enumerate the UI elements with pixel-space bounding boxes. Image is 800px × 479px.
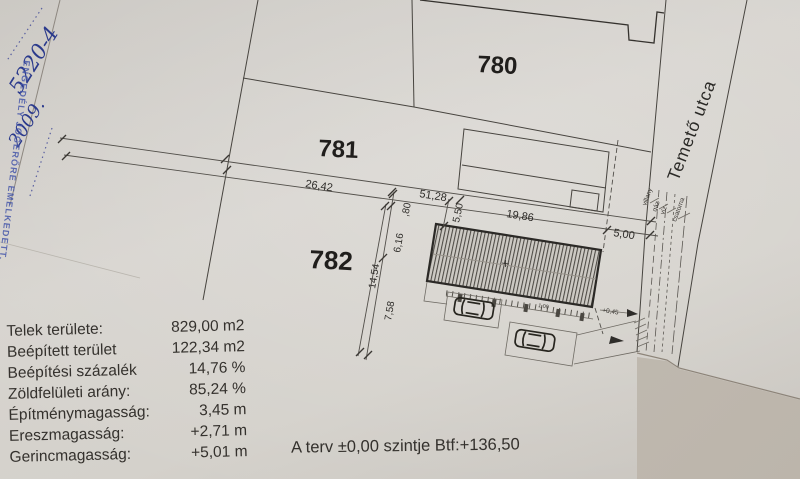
dim-side-setback: 5,50 <box>451 202 466 224</box>
car-top-view-2 <box>514 329 555 352</box>
street-lines <box>637 0 800 399</box>
datum-level-note: A terv ±0,00 szintje Btf:+136,50 <box>291 435 520 457</box>
dim-front-total: 51,28 <box>419 188 448 204</box>
row-value: 122,34 m2 <box>171 336 245 359</box>
dim-street-setback: 5,00 <box>613 227 636 242</box>
site-plan-photo: 26,42 51,28 19,86 5,00 5,50 ,80 6,16 14,… <box>0 0 800 479</box>
row-label: Gerincmagasság: <box>9 444 131 468</box>
row-value: 829,00 m2 <box>171 315 245 338</box>
row-value: 14,76 % <box>188 357 245 379</box>
permit-annotations: 5220-4 2009. ENGEDÉLY JOGERŐRE EMELKEDET… <box>0 0 63 261</box>
slope-arrow-icon <box>627 309 638 317</box>
row-label: Ereszmagasság: <box>9 423 125 447</box>
row-label: Zöldfelületi arány: <box>8 381 131 405</box>
handwritten-file-number: 5220-4 <box>4 22 64 97</box>
row-value: 3,45 m <box>199 399 247 421</box>
dim-depth-total: 14,54 <box>367 263 382 290</box>
dim-front-left: 26,42 <box>305 178 334 194</box>
site-statistics-table: Telek területe:829,00 m2 Beépített terül… <box>6 315 248 468</box>
dim-building-width: 6,16 <box>392 232 406 254</box>
dim-driveway-level: +0,45 <box>602 307 620 317</box>
driveway-arrow-icon <box>609 336 624 344</box>
utility-viz-label: víz <box>659 205 668 215</box>
row-label: Beépített terület <box>7 339 117 363</box>
utility-villany-label: villany <box>641 187 654 207</box>
row-label: Építménymagasság: <box>8 401 150 425</box>
parcel-782-label: 782 <box>309 244 354 276</box>
dim-strip: ,80 <box>400 201 414 217</box>
row-value: +2,71 m <box>190 420 247 442</box>
planned-building-782 <box>427 224 601 321</box>
row-value: +5,01 m <box>191 441 248 463</box>
dim-building-length: 19,86 <box>506 208 535 224</box>
existing-building-780 <box>420 0 664 43</box>
parcel-781-label: 781 <box>318 135 359 164</box>
street-name-label: Temető utca <box>663 77 720 183</box>
parcel-780-label: 780 <box>477 51 518 80</box>
dim-rear: 7,58 <box>383 300 397 322</box>
row-label: Telek területe: <box>6 319 103 342</box>
row-value: 85,24 % <box>189 378 246 400</box>
